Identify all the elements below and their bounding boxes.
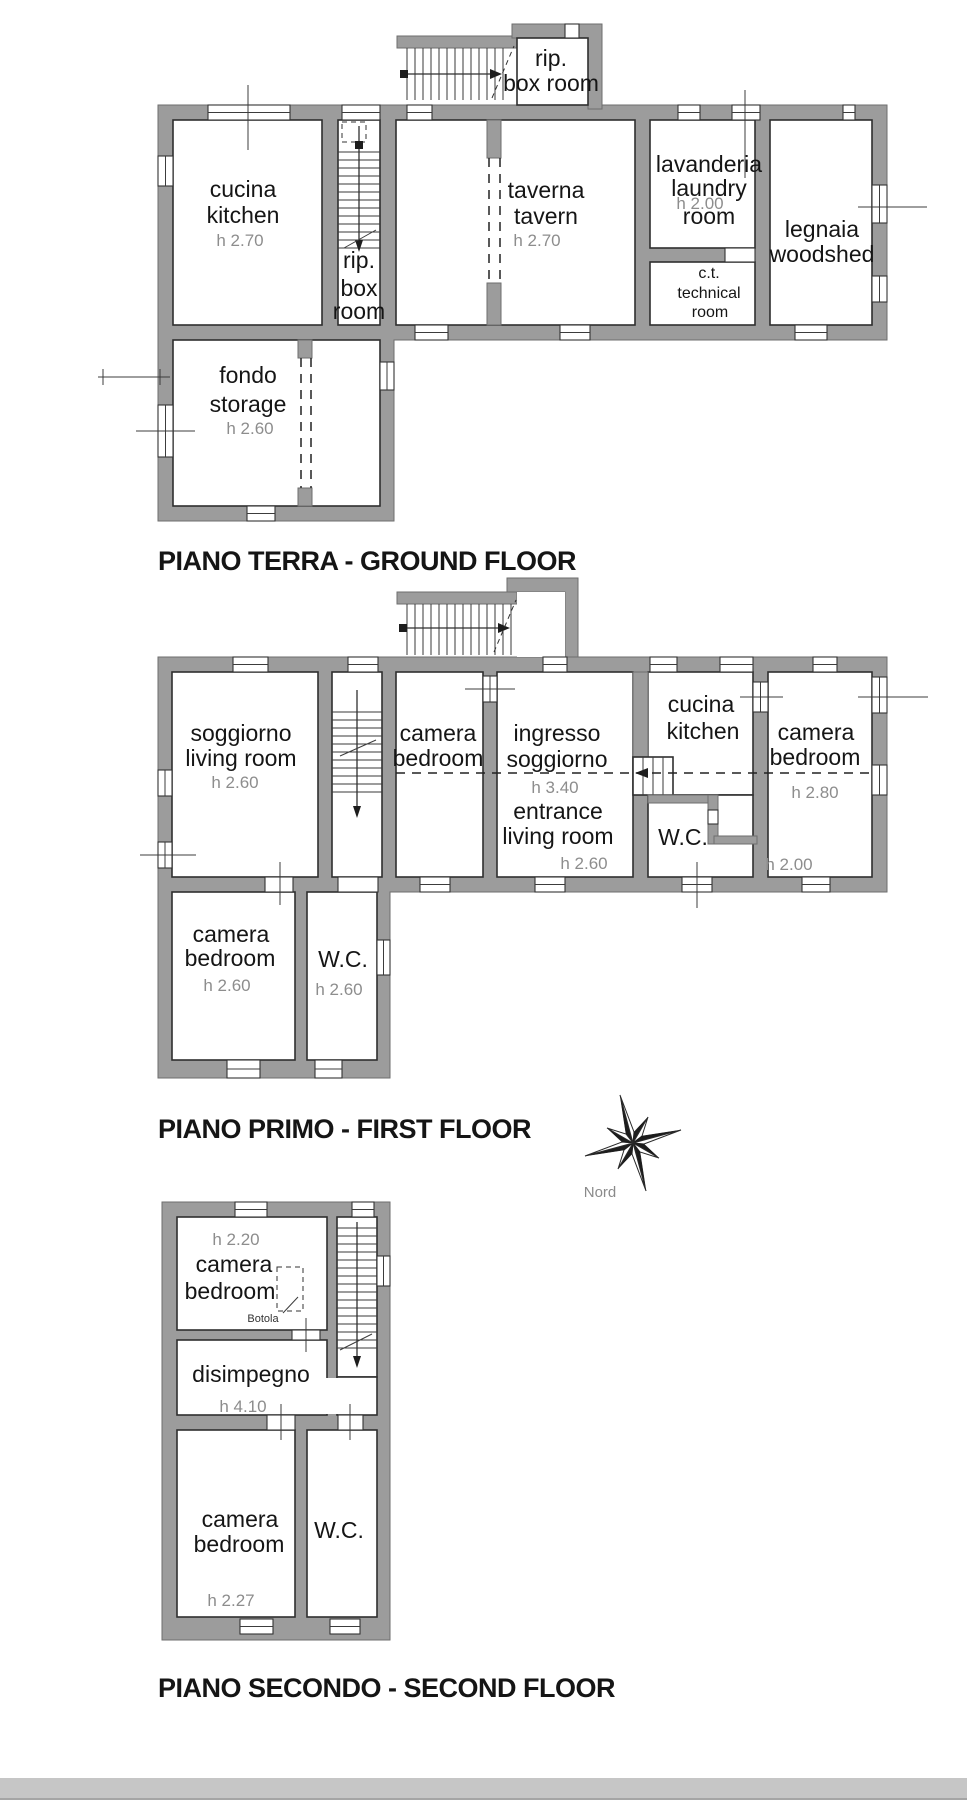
stair-start-mark (355, 141, 363, 149)
room-label: living room (185, 745, 296, 771)
room-label: fondo (219, 362, 277, 388)
first-exterior-stair-wall (397, 592, 517, 604)
room-label: entrance (513, 798, 603, 824)
scanned-floor-plan-page: rip. box room cucina kitchen h 2.70 rip.… (0, 0, 967, 1800)
floor-title-first: PIANO PRIMO - FIRST FLOOR (158, 1114, 531, 1144)
room-height: h 2.27 (207, 1591, 254, 1610)
stair-start-mark (400, 70, 408, 78)
room-bedroom-east (768, 672, 872, 877)
wall-stub (298, 488, 312, 506)
room-label: tavern (514, 203, 578, 229)
stair-break-line (494, 600, 516, 652)
wc-wall (648, 795, 714, 803)
room-height: h 3.40 (531, 778, 578, 797)
floor-title-second: PIANO SECONDO - SECOND FLOOR (158, 1673, 615, 1703)
landing (517, 592, 565, 657)
room-label: W.C. (658, 824, 708, 850)
ground-floor-plan: rip. box room cucina kitchen h 2.70 rip.… (98, 24, 927, 576)
room-label: kitchen (207, 202, 280, 228)
room-label: room (692, 304, 728, 321)
room-height: h 2.70 (216, 231, 263, 250)
room-label: storage (210, 391, 287, 417)
room-label: cucina (668, 691, 735, 717)
room-label: camera (778, 719, 855, 745)
floor-plan-sheet: rip. box room cucina kitchen h 2.70 rip.… (0, 0, 967, 1800)
compass-rose-icon: Nord (584, 1095, 681, 1201)
room-bedroom-center (396, 672, 483, 877)
wall-stub (487, 120, 501, 158)
scan-edge-band (0, 1778, 967, 1800)
room-label: ingresso (514, 720, 601, 746)
room-height: h 2.70 (513, 231, 560, 250)
room-height: h 2.60 (560, 854, 607, 873)
stair-landing (337, 1377, 377, 1415)
room-height: h 2.60 (203, 976, 250, 995)
room-label: legnaia (785, 216, 859, 242)
ground-exterior-stair-wall (397, 36, 517, 48)
room-label: W.C. (318, 946, 368, 972)
room-label: bedroom (185, 1278, 276, 1304)
first-floor-plan: soggiorno living room h 2.60 camera bedr… (140, 578, 928, 1144)
wall-stub (487, 283, 501, 325)
room-label: living room (502, 823, 613, 849)
room-label: taverna (508, 177, 585, 203)
room-label: box room (503, 70, 599, 96)
room-height: h 2.60 (211, 773, 258, 792)
room-label: c.t. (698, 265, 719, 282)
room-label: disimpegno (192, 1361, 310, 1387)
room-label: soggiorno (506, 746, 607, 772)
compass-north-label: Nord (584, 1184, 617, 1201)
room-label: kitchen (667, 718, 740, 744)
partition-wall (633, 672, 648, 757)
room-height: h 2.60 (315, 980, 362, 999)
second-floor-plan: Botola h 2.20 camera bedroom disimpegno … (158, 1202, 615, 1703)
room-label: lavanderia (656, 151, 762, 177)
room-label: woodshed (769, 241, 875, 267)
room-label: camera (202, 1506, 279, 1532)
room-label: technical (677, 285, 740, 302)
room-label: camera (193, 921, 270, 947)
room-label: soggiorno (190, 720, 291, 746)
room-label: cucina (210, 176, 277, 202)
trapdoor-label: Botola (247, 1313, 279, 1325)
room-label: bedroom (770, 744, 861, 770)
room-label: camera (196, 1251, 273, 1277)
room-label: camera (400, 720, 477, 746)
room-label: W.C. (314, 1517, 364, 1543)
room-label: rip. (535, 45, 567, 71)
room-label: rip. (343, 247, 375, 273)
window (708, 810, 718, 824)
wall-stub (298, 340, 312, 358)
window (565, 24, 579, 38)
room-wc-south (307, 892, 377, 1060)
room-label: room (683, 203, 735, 229)
door-gap (725, 248, 755, 262)
room-label: room (333, 298, 385, 324)
room-label: bedroom (185, 945, 276, 971)
stair-arrow-icon (498, 623, 510, 633)
exterior-stairs (407, 604, 511, 655)
floor-title-ground: PIANO TERRA - GROUND FLOOR (158, 546, 576, 576)
stair-start-mark (399, 624, 407, 632)
room-label: bedroom (393, 745, 484, 771)
room-label: bedroom (194, 1531, 285, 1557)
room-height: h 2.80 (791, 783, 838, 802)
room-height: h 2.00 (765, 855, 812, 874)
wc-wall (714, 836, 757, 844)
door-gap (326, 1378, 338, 1414)
room-height: h 2.60 (226, 419, 273, 438)
room-height: h 2.20 (212, 1230, 259, 1249)
room-height: h 4.10 (219, 1397, 266, 1416)
